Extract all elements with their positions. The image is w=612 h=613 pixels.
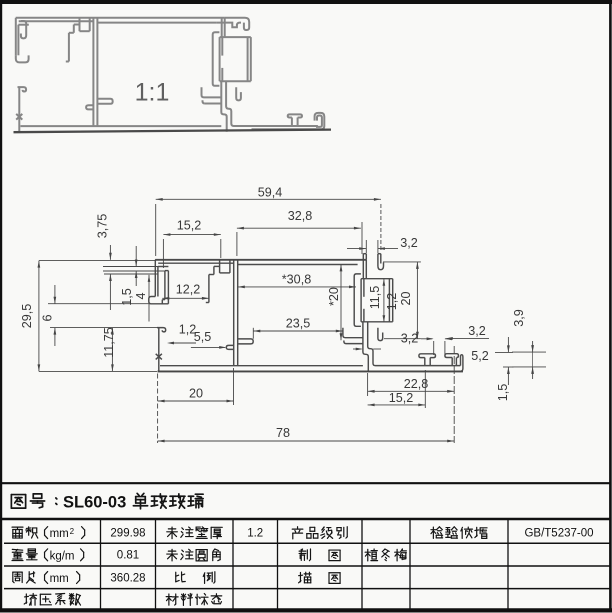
svg-text:2: 2 <box>70 527 75 536</box>
svg-text:SL60-03: SL60-03 <box>63 494 126 512</box>
svg-text:mm: mm <box>50 573 69 585</box>
svg-text:299.98: 299.98 <box>110 527 145 539</box>
svg-text:kg/m: kg/m <box>50 550 75 562</box>
svg-text:1.2: 1.2 <box>247 527 263 539</box>
svg-text:360.28: 360.28 <box>110 572 145 584</box>
svg-text:mm: mm <box>50 528 69 540</box>
svg-text:GB/T5237-00: GB/T5237-00 <box>524 527 593 539</box>
svg-text:0.81: 0.81 <box>117 550 139 562</box>
